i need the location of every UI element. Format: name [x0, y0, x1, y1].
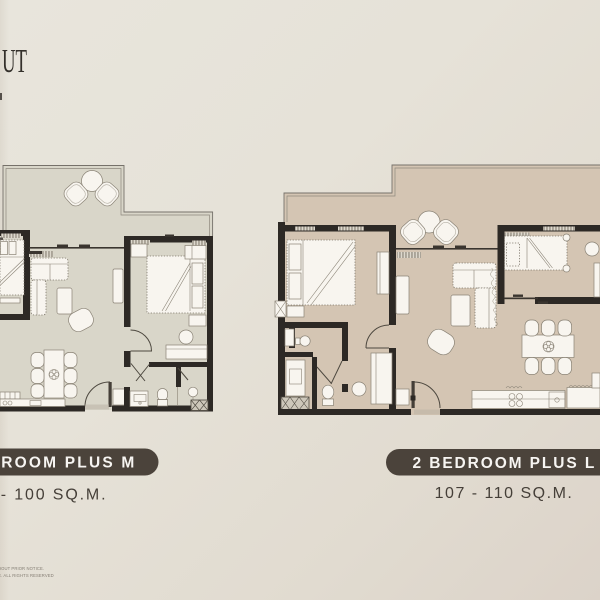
svg-text:107 - 110 SQ.M.: 107 - 110 SQ.M. — [435, 485, 574, 502]
svg-text:UT: UT — [2, 43, 27, 80]
svg-text:NCE. ALL RIGHTS RESERVED: NCE. ALL RIGHTS RESERVED — [0, 573, 54, 578]
svg-text:2 BEDROOM PLUS M: 2 BEDROOM PLUS M — [0, 455, 137, 472]
svg-text:98 - 100 SQ.M.: 98 - 100 SQ.M. — [0, 487, 107, 504]
svg-text:2 BEDROOM PLUS L: 2 BEDROOM PLUS L — [413, 455, 597, 472]
svg-text:WITHOUT PRIOR NOTICE.: WITHOUT PRIOR NOTICE. — [0, 566, 44, 571]
